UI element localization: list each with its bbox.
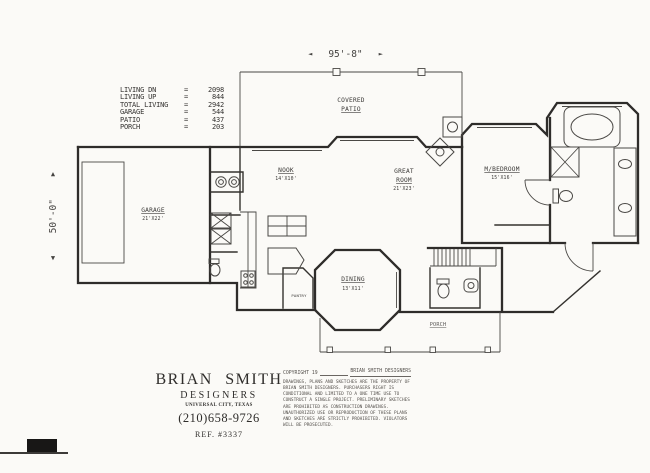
copyright-notice-text: DRAWINGS, PLANS AND SKETCHES ARE THE PRO… <box>283 380 411 430</box>
stair-treads <box>434 249 466 266</box>
firm-phone: (210)658-9726 <box>148 411 290 426</box>
patio-post <box>333 69 340 76</box>
entry-angled-wall <box>553 271 600 312</box>
staircase <box>430 248 496 266</box>
firm-subtitle: DESIGNERS <box>148 390 290 401</box>
toilet-tank <box>553 189 559 203</box>
room-label-covered-patio: COVERED <box>337 97 365 104</box>
copyright-header: COPYRIGHT 19 BRIAN SMITH DESIGNERS <box>283 369 411 377</box>
room-label-nook: NOOK <box>278 167 294 174</box>
firm-location: UNIVERSAL CITY, TEXAS <box>148 403 290 408</box>
fireplace <box>426 117 462 166</box>
entry-door <box>565 243 593 271</box>
copyright-block: COPYRIGHT 19 BRIAN SMITH DESIGNERS DRAWI… <box>283 369 411 430</box>
designer-title-block: BRIAN SMITH DESIGNERS UNIVERSAL CITY, TE… <box>148 371 290 439</box>
firm-name: BRIAN SMITH <box>148 371 290 389</box>
scan-artifact-bar <box>27 439 57 452</box>
porch-post <box>327 347 333 353</box>
bedroom-door <box>525 180 550 205</box>
room-label-dining: DINING <box>341 276 365 283</box>
patio-post <box>418 69 425 76</box>
room-dim-garage: 21'X22' <box>142 216 164 222</box>
room-label-garage: GARAGE <box>141 207 165 214</box>
garage-door-area <box>82 162 124 263</box>
kitchen-counter <box>240 212 256 288</box>
porch-post <box>385 347 391 353</box>
window-lines <box>252 107 622 309</box>
kitchen-peninsula <box>268 248 304 274</box>
scan-artifact-line <box>0 452 68 454</box>
porch-post <box>430 347 436 353</box>
sink-basin <box>468 283 474 289</box>
room-dim-great-room: 21'X23' <box>393 186 415 192</box>
sink-basin <box>619 160 632 169</box>
room-label-great-room-2: ROOM <box>396 177 412 184</box>
room-label-porch: PORCH <box>430 322 447 328</box>
bathtub <box>564 107 620 147</box>
room-label-pantry: PANTRY <box>291 293 307 298</box>
copyright-year-label: COPYRIGHT 19 <box>283 371 318 377</box>
sink-basin <box>619 204 632 213</box>
porch-post <box>485 347 491 353</box>
toilet-bowl <box>560 191 573 202</box>
kitchen-fixtures <box>240 212 306 288</box>
sink <box>464 279 478 292</box>
toilet-bowl <box>210 264 220 276</box>
powder-room-fixtures <box>437 279 478 298</box>
bathtub-basin <box>571 114 613 140</box>
room-dim-dining: 13'X11' <box>342 286 364 292</box>
utility-walls <box>210 147 243 252</box>
room-dim-nook: 14'X10' <box>275 176 297 182</box>
floor-plan-sheet: ◄ 95'-8" ► ▲ 50'-0" ▼ LIVING DN=2098 LIV… <box>0 0 650 473</box>
copyright-owner: BRIAN SMITH DESIGNERS <box>350 369 411 377</box>
toilet-bowl <box>438 284 449 298</box>
vanity <box>614 148 636 236</box>
water-heater <box>229 177 239 187</box>
master-bath-fixtures <box>551 107 636 236</box>
room-label-covered-patio-2: PATIO <box>341 106 361 113</box>
room-dim-master-bedroom: 15'X16' <box>491 175 513 181</box>
porch-outline <box>320 312 500 353</box>
copyright-blank-line <box>320 375 349 376</box>
room-label-master-bedroom: M/BEDROOM <box>484 166 519 173</box>
plan-reference-number: REF. #3337 <box>148 430 290 439</box>
water-heater <box>216 177 226 187</box>
toilet-tank <box>437 279 449 284</box>
closet-wall <box>495 225 550 243</box>
corner-fireplace <box>426 138 454 166</box>
room-label-great-room: GREAT <box>394 168 414 175</box>
